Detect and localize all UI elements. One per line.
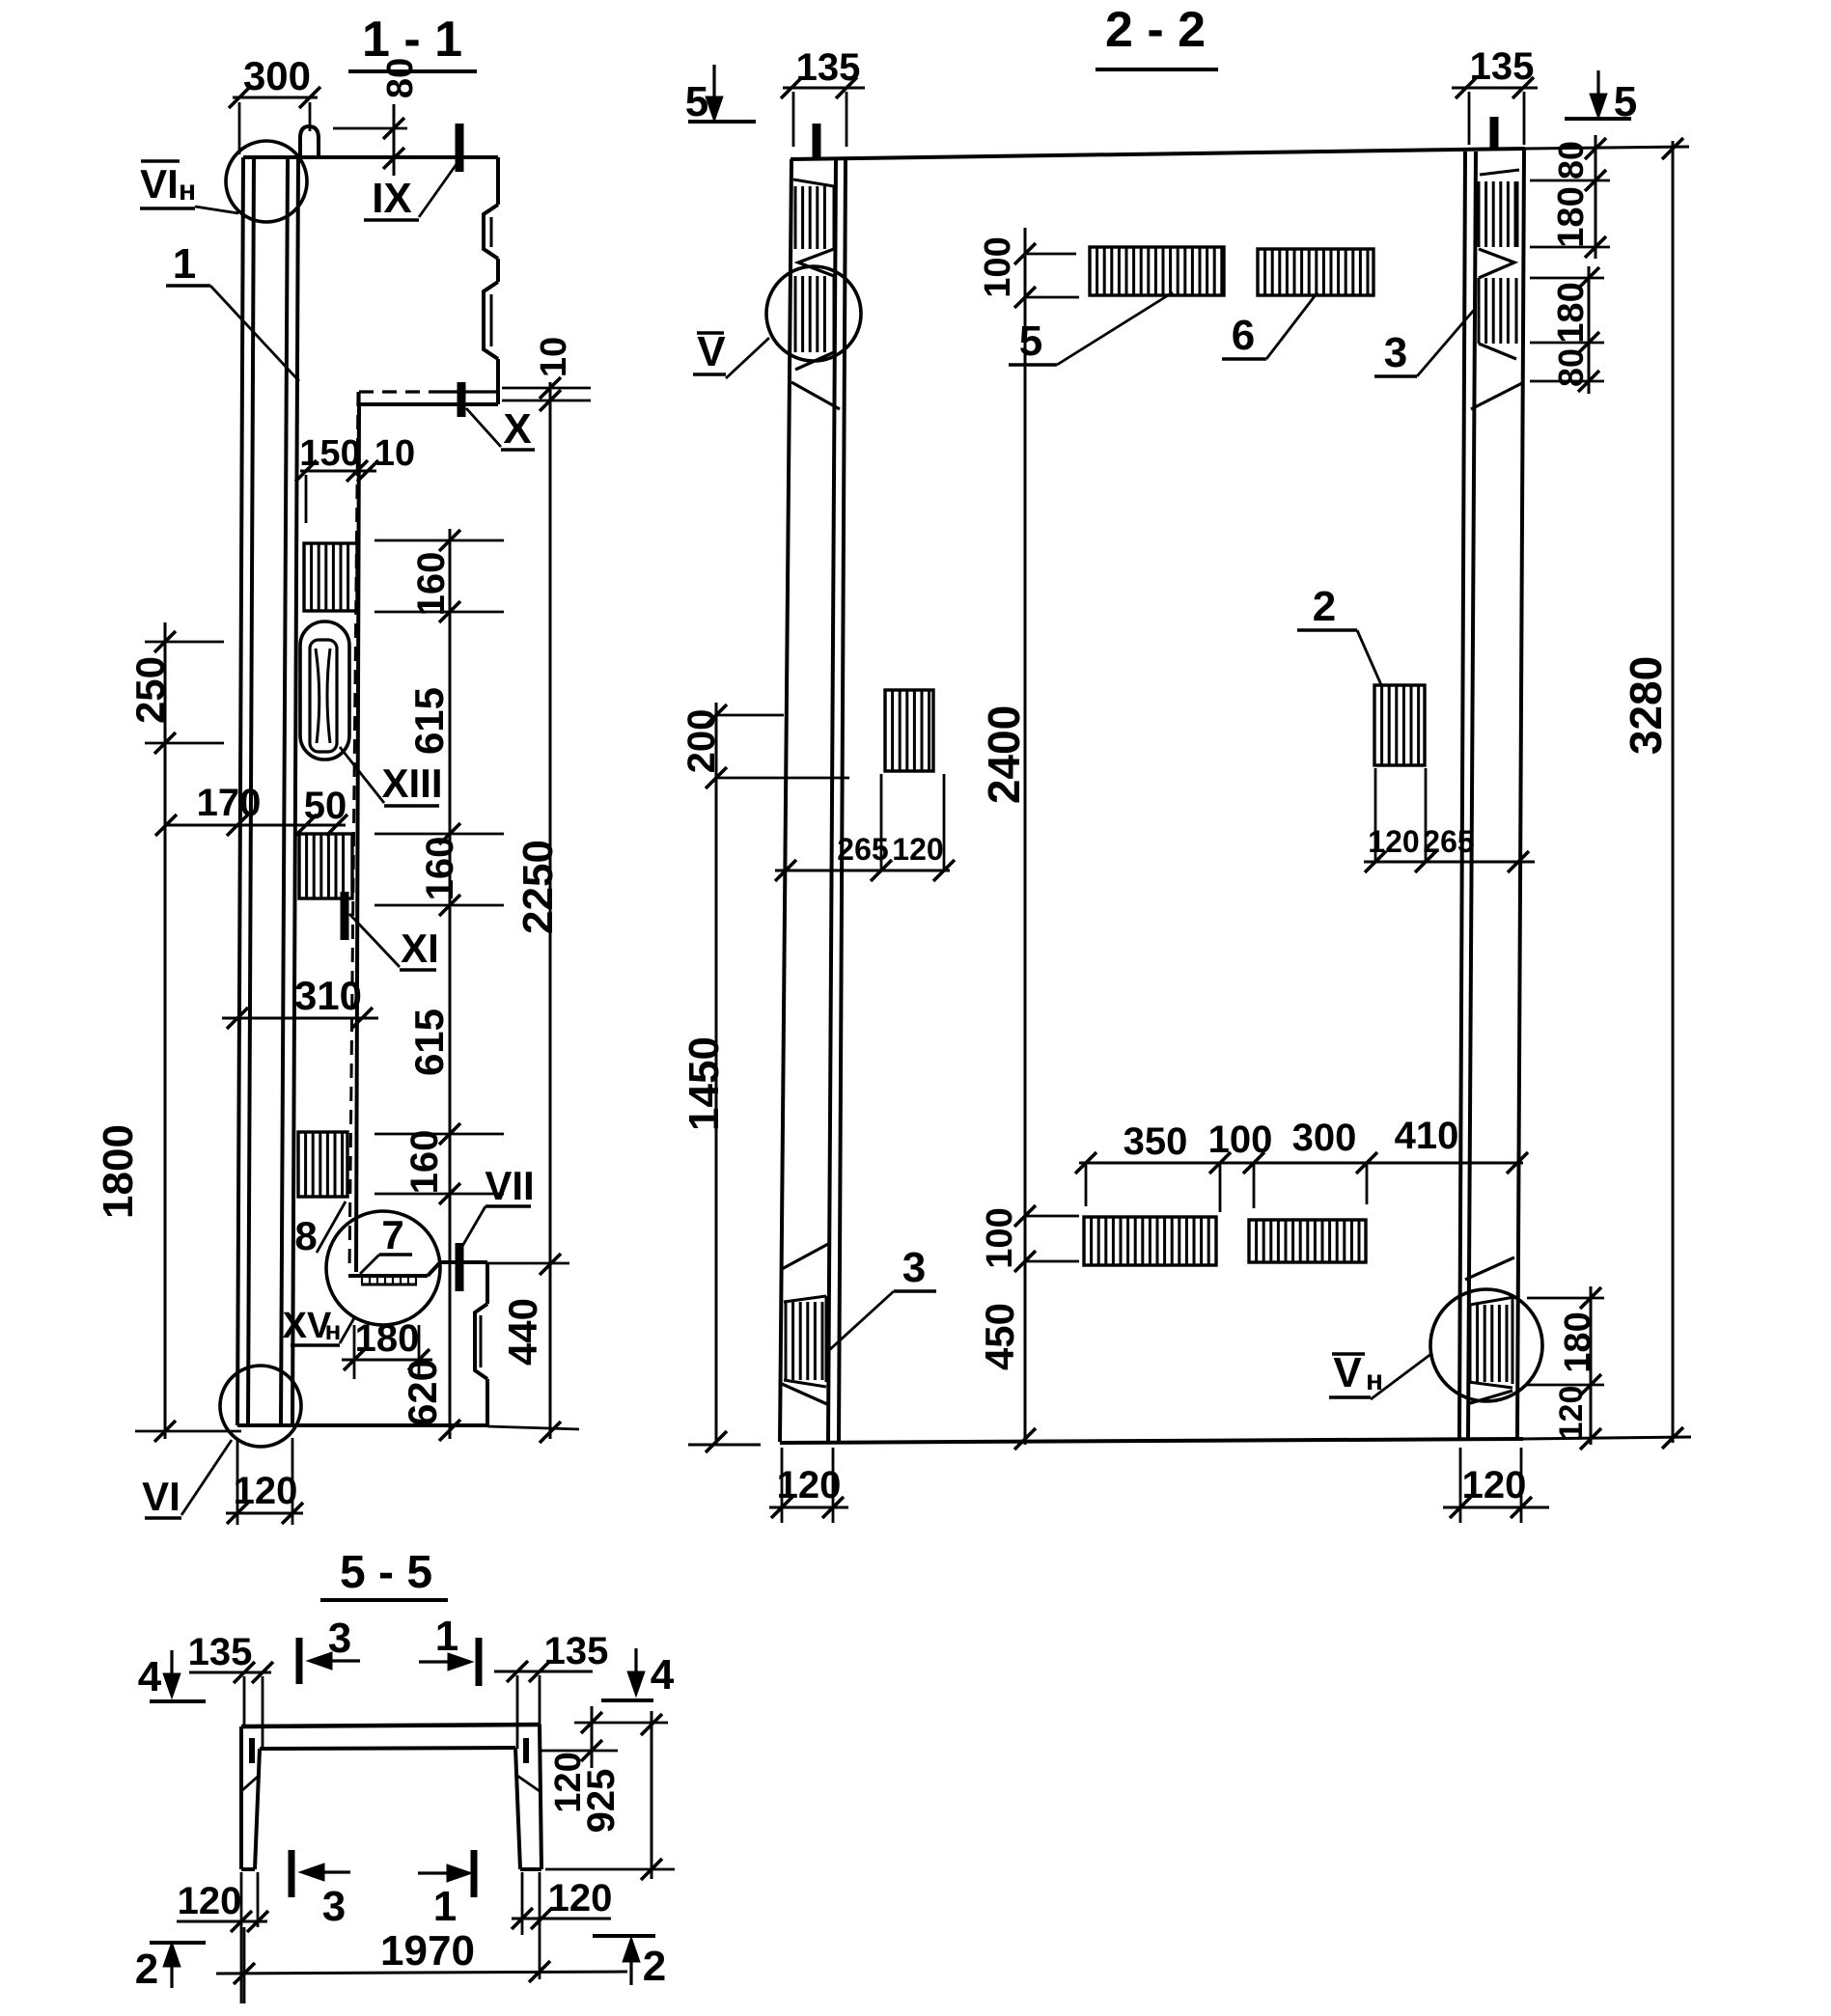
svg-text:180: 180: [1551, 282, 1592, 343]
svg-text:180: 180: [1558, 1312, 1598, 1372]
svg-text:5 - 5: 5 - 5: [340, 1547, 432, 1598]
svg-text:2: 2: [1313, 583, 1336, 630]
svg-text:VII: VII: [485, 1163, 534, 1208]
svg-text:170: 170: [197, 782, 262, 824]
svg-text:2: 2: [135, 1946, 158, 1993]
svg-text:80: 80: [380, 58, 421, 98]
svg-text:IX: IX: [372, 175, 412, 222]
svg-text:1800: 1800: [95, 1124, 142, 1219]
svg-text:120: 120: [178, 1880, 242, 1922]
svg-text:120: 120: [548, 1877, 613, 1919]
svg-text:440: 440: [500, 1298, 545, 1366]
svg-text:410: 410: [1395, 1115, 1459, 1157]
svg-text:5: 5: [685, 78, 708, 125]
svg-text:925: 925: [580, 1769, 623, 1834]
svg-text:1: 1: [433, 1883, 457, 1930]
svg-text:н: н: [325, 1315, 342, 1345]
svg-text:10: 10: [375, 433, 415, 474]
svg-text:350: 350: [1124, 1120, 1188, 1163]
svg-text:120: 120: [1553, 1386, 1590, 1441]
svg-text:615: 615: [406, 687, 452, 755]
svg-text:V: V: [697, 328, 726, 375]
svg-text:3: 3: [1384, 329, 1407, 376]
svg-text:10: 10: [534, 337, 574, 377]
svg-text:1: 1: [435, 1613, 458, 1660]
svg-text:1: 1: [173, 240, 196, 288]
svg-text:2250: 2250: [514, 840, 562, 934]
svg-text:4: 4: [138, 1653, 162, 1700]
svg-text:120: 120: [1462, 1464, 1527, 1506]
svg-text:VI: VI: [140, 161, 179, 207]
svg-text:3: 3: [902, 1244, 926, 1291]
svg-text:180: 180: [355, 1317, 420, 1360]
svg-text:2: 2: [643, 1943, 666, 1990]
svg-text:135: 135: [796, 46, 861, 89]
svg-text:300: 300: [243, 53, 311, 98]
svg-text:1970: 1970: [380, 1927, 475, 1975]
svg-text:VI: VI: [142, 1474, 180, 1519]
svg-text:100: 100: [1208, 1118, 1273, 1161]
svg-text:1450: 1450: [680, 1036, 728, 1131]
svg-text:620: 620: [400, 1359, 445, 1426]
svg-text:6: 6: [1232, 312, 1255, 359]
svg-text:120: 120: [892, 832, 943, 867]
svg-text:2 - 2: 2 - 2: [1105, 2, 1206, 58]
svg-text:3: 3: [322, 1883, 346, 1930]
svg-text:135: 135: [1470, 45, 1535, 88]
svg-text:180: 180: [1551, 186, 1592, 247]
svg-text:160: 160: [403, 1130, 446, 1195]
svg-text:160: 160: [419, 837, 461, 901]
svg-text:8: 8: [294, 1213, 317, 1258]
svg-text:7: 7: [381, 1212, 403, 1257]
svg-text:2400: 2400: [979, 705, 1029, 804]
svg-text:150: 150: [299, 433, 360, 474]
svg-text:80: 80: [1551, 348, 1591, 387]
svg-text:160: 160: [410, 552, 453, 617]
svg-text:100: 100: [980, 1207, 1020, 1268]
svg-text:120: 120: [777, 1464, 842, 1506]
svg-text:XI: XI: [401, 925, 439, 971]
svg-text:120: 120: [1368, 824, 1419, 859]
svg-text:250: 250: [127, 656, 173, 724]
svg-text:135: 135: [188, 1631, 253, 1673]
svg-text:200: 200: [680, 709, 723, 774]
svg-text:н: н: [179, 175, 196, 207]
svg-text:XIII: XIII: [381, 760, 442, 806]
svg-text:3280: 3280: [1621, 656, 1671, 755]
svg-text:265: 265: [1423, 824, 1474, 859]
svg-text:50: 50: [304, 785, 347, 827]
svg-text:5: 5: [1019, 318, 1042, 365]
svg-text:100: 100: [978, 236, 1018, 297]
svg-text:265: 265: [837, 832, 888, 867]
svg-text:450: 450: [977, 1303, 1022, 1370]
svg-text:310: 310: [294, 973, 362, 1018]
svg-text:300: 300: [1292, 1117, 1357, 1159]
svg-text:135: 135: [544, 1630, 609, 1672]
svg-text:V: V: [1333, 1349, 1362, 1396]
svg-text:4: 4: [651, 1651, 675, 1698]
svg-text:X: X: [503, 405, 531, 453]
svg-text:615: 615: [406, 1008, 452, 1076]
svg-text:80: 80: [1551, 141, 1591, 180]
svg-text:120: 120: [234, 1470, 298, 1512]
